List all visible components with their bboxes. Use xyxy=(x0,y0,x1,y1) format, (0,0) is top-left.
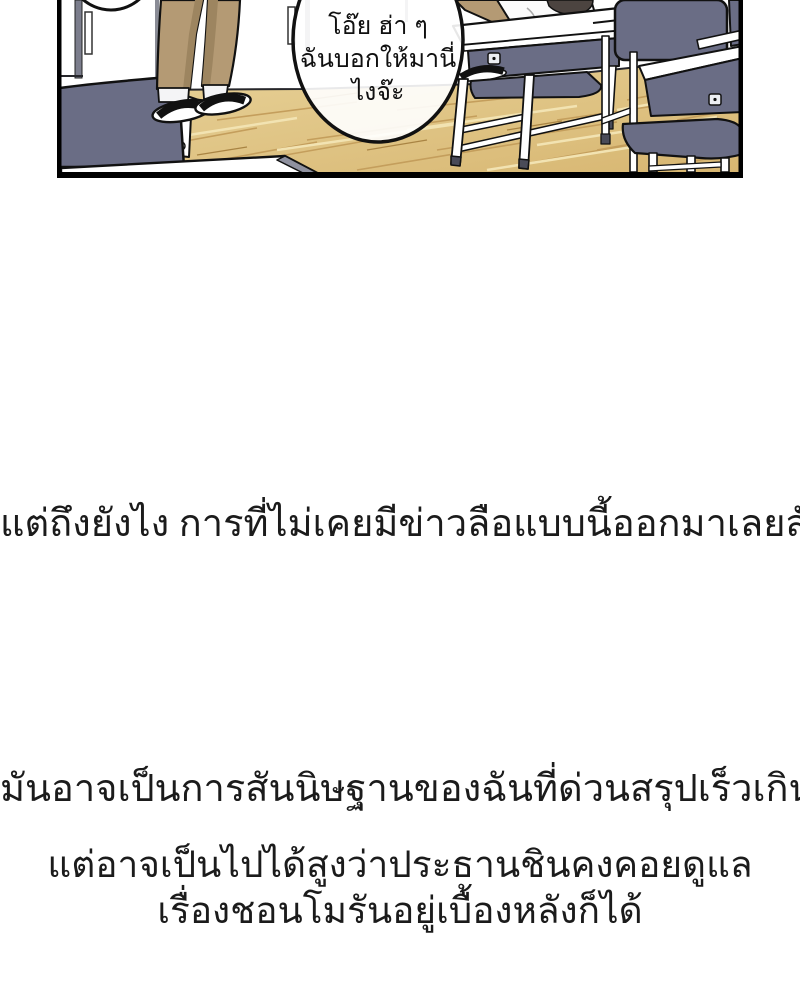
narration-block-3-line-2: เรื่องชอนโมรันอยู่เบื้องหลังก็ได้ xyxy=(0,889,800,935)
narration-block-1: แต่ถึงยังไง การที่ไม่เคยมีข่าวลือแบบนี้อ… xyxy=(0,492,800,553)
speech-bubble-line-1: โอ๊ย ฮ่า ๆ xyxy=(268,10,488,43)
narration-block-3-line-1: แต่อาจเป็นไปได้สูงว่าประธานชินคงคอยดูแล xyxy=(0,843,800,889)
speech-bubble-text: โอ๊ย ฮ่า ๆ ฉันบอกให้มานี่ ไงจ๊ะ xyxy=(268,10,488,109)
comic-page: โอ๊ย ฮ่า ๆ ฉันบอกให้มานี่ ไงจ๊ะ แต่ถึงยั… xyxy=(0,0,800,1000)
narration-block-3: แต่อาจเป็นไปได้สูงว่าประธานชินคงคอยดูแล … xyxy=(0,843,800,935)
narration-block-2: มันอาจเป็นการสันนิษฐานของฉันที่ด่วนสรุปเ… xyxy=(0,757,800,818)
speech-bubble-line-3: ไงจ๊ะ xyxy=(268,76,488,109)
comic-panel: โอ๊ย ฮ่า ๆ ฉันบอกให้มานี่ ไงจ๊ะ xyxy=(57,0,743,178)
speech-bubble-line-2: ฉันบอกให้มานี่ xyxy=(268,43,488,76)
